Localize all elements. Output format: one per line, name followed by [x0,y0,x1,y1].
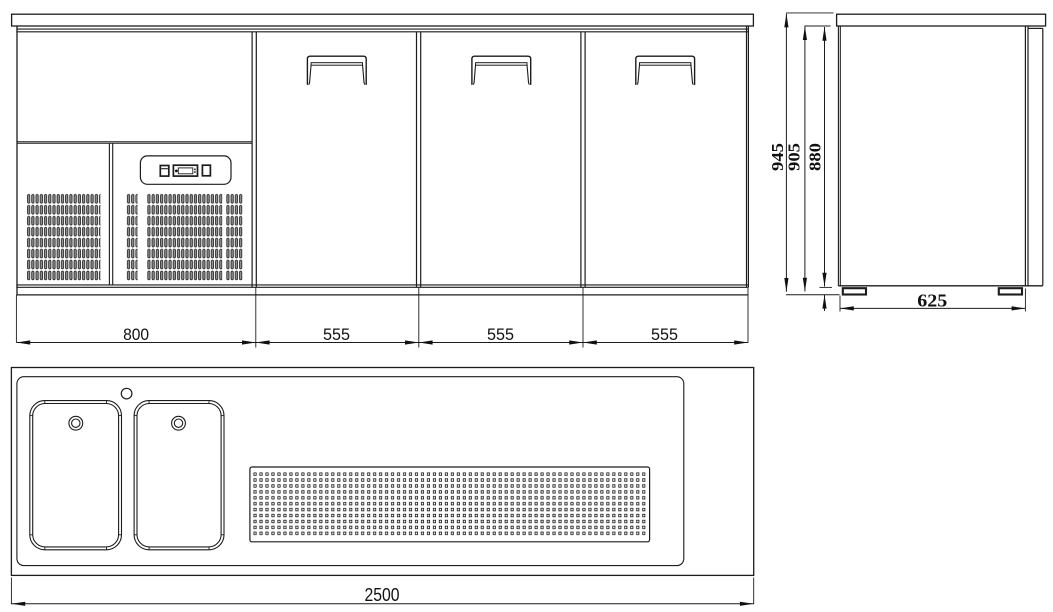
svg-text:2500: 2500 [365,584,400,605]
svg-text:555: 555 [323,325,350,344]
svg-text:800: 800 [123,325,149,344]
svg-text:880: 880 [805,143,824,171]
svg-text:555: 555 [487,325,514,344]
svg-text:555: 555 [651,325,678,344]
svg-text:905: 905 [784,143,803,171]
svg-text:625: 625 [917,291,947,311]
